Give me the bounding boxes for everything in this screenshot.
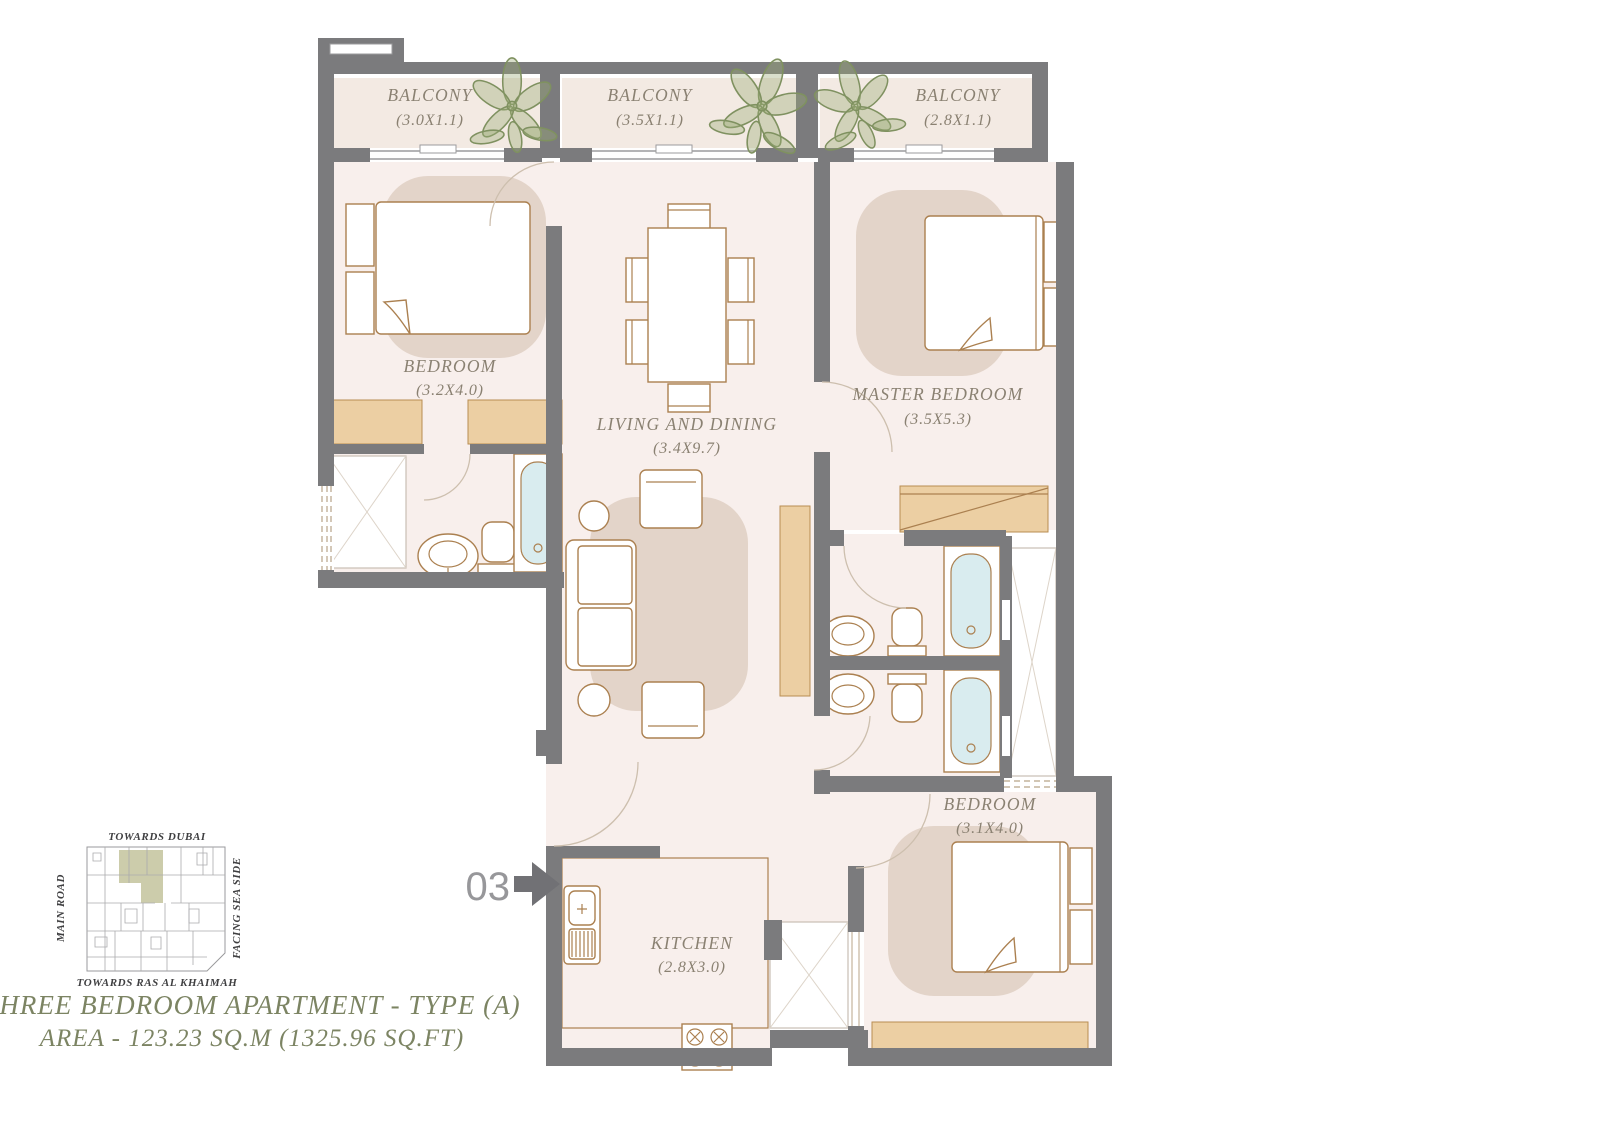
keyplan-bottom-label: TOWARDS RAS AL KHAIMAH bbox=[77, 977, 238, 989]
entrance-marker: 03 bbox=[466, 862, 561, 909]
side-table bbox=[579, 501, 609, 531]
plan-title: THREE BEDROOM APARTMENT - TYPE (A) bbox=[0, 990, 521, 1020]
bath-closet bbox=[1008, 548, 1056, 776]
bathtub-icon bbox=[944, 546, 1000, 656]
bedroom-left-dim: (3.2X4.0) bbox=[416, 382, 484, 399]
balcony-left-dim: (3.0X1.1) bbox=[396, 112, 464, 129]
plan-area: AREA - 123.23 SQ.M (1325.96 SQ.FT) bbox=[38, 1025, 464, 1052]
balcony-mid-label: BALCONY bbox=[607, 85, 693, 105]
toilet-icon bbox=[482, 522, 514, 562]
bedroom-right-label: BEDROOM bbox=[944, 794, 1037, 814]
toilet-icon bbox=[892, 608, 922, 646]
floor-plan-page: BALCONY (3.0X1.1) BALCONY (3.5X1.1) BALC… bbox=[0, 0, 1600, 1131]
balcony-right-label: BALCONY bbox=[915, 85, 1001, 105]
floor-plan: BALCONY (3.0X1.1) BALCONY (3.5X1.1) BALC… bbox=[0, 0, 1600, 1131]
toilet-icon bbox=[892, 684, 922, 722]
side-table bbox=[578, 684, 610, 716]
keyplan-top-label: TOWARDS DUBAI bbox=[108, 831, 206, 843]
keyplan-left-label: MAIN ROAD bbox=[55, 874, 67, 943]
key-plan: TOWARDS DUBAI TOWARDS RAS AL KHAIMAH MAI… bbox=[55, 831, 243, 989]
armchair bbox=[640, 470, 702, 528]
master-bedroom-dim: (3.5X5.3) bbox=[904, 411, 972, 428]
wardrobe bbox=[324, 400, 422, 444]
kitchen-sink-icon bbox=[564, 886, 600, 964]
balcony-mid-dim: (3.5X1.1) bbox=[616, 112, 684, 129]
kitchen-dim: (2.8X3.0) bbox=[658, 959, 726, 976]
keyplan-right-label: FACING SEA SIDE bbox=[231, 857, 243, 960]
bathtub-icon bbox=[944, 670, 1000, 772]
key-plan-drawing bbox=[87, 847, 225, 971]
armchair bbox=[642, 682, 704, 738]
bedroom-right-dim: (3.1X4.0) bbox=[956, 820, 1024, 837]
balcony-right-dim: (2.8X1.1) bbox=[924, 112, 992, 129]
kitchen-label: KITCHEN bbox=[650, 933, 733, 953]
highlighted-unit bbox=[119, 850, 163, 903]
living-label: LIVING AND DINING bbox=[596, 414, 778, 434]
living-dim: (3.4X9.7) bbox=[653, 440, 721, 457]
footer: THREE BEDROOM APARTMENT - TYPE (A) AREA … bbox=[0, 990, 521, 1052]
master-bedroom-label: MASTER BEDROOM bbox=[852, 384, 1024, 404]
unit-number: 03 bbox=[466, 865, 511, 909]
bedroom-left-label: BEDROOM bbox=[404, 356, 497, 376]
balcony-left-label: BALCONY bbox=[387, 85, 473, 105]
tv-console bbox=[780, 506, 810, 696]
master-wardrobe bbox=[900, 486, 1048, 532]
